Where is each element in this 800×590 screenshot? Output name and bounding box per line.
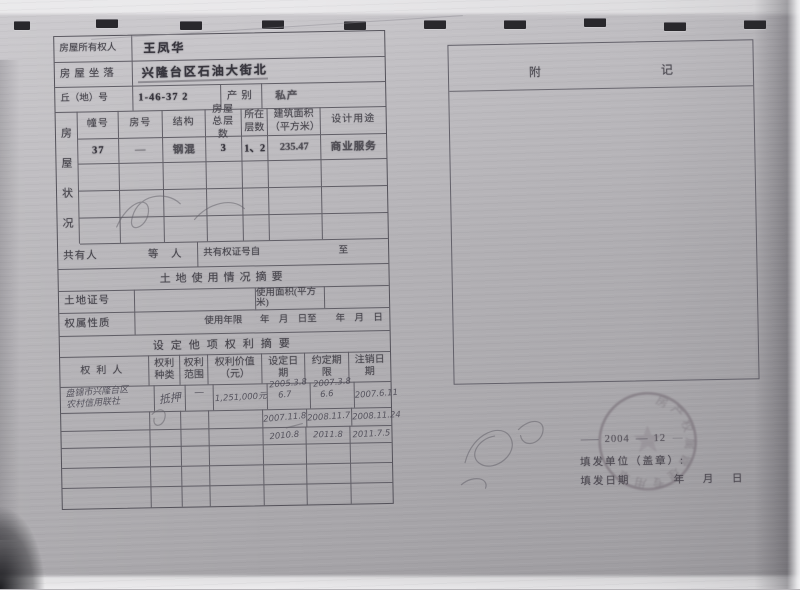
floor-value: 1、2 [244,140,265,155]
notes-panel: 附 记 [447,39,759,385]
notes-title-char: 附 [529,63,541,80]
dash-mark [672,437,682,439]
building-no-value: 37 [92,145,105,156]
coowner-label: 共有人 [63,250,98,262]
rights-section-title: 设定他项权利摘要 [153,334,297,353]
issuer-line: 填发单位（盖章）: [580,453,685,470]
scanned-document: 房屋所有权人 王凤华 房屋坐落 兴隆台区石油大街北 丘（地）号 [0,0,800,589]
side-char: 况 [62,215,73,231]
issue-date-line: 填发日期 年 月 日 [580,470,744,488]
use-years-label: 使用年限 [204,316,242,327]
plot-label: 丘（地）号 [60,93,108,104]
col-right-scope: 权利范围 [180,357,207,382]
right-scope-value: — [194,387,204,398]
side-char: 屋 [61,155,72,171]
issuer-label: 填发单位（盖章）: [580,456,685,469]
condition-side-label: 房 屋 状 况 [56,112,80,244]
location-label-cell: 房屋坐落 [55,61,133,87]
owner-label: 房屋所有权人 [59,43,116,54]
coowner-cert-label: 共有权证号自 [203,248,260,259]
class-value: 私产 [267,88,298,104]
col-room-no: 房号 [127,118,153,131]
cancel-date-value: 2007.6.11 [354,388,398,401]
col-floor: 所在层数 [242,109,267,134]
room-no-value: — [135,144,147,155]
col-cancel-date: 注销日期 [349,353,390,379]
term-value: 2008.11.7 [307,411,351,424]
issue-date-label: 填发日期 [580,476,630,488]
issue-date-blanks: 年 月 日 [674,473,745,485]
col-structure: 结构 [171,117,197,130]
coowner-count-suffix: 等 人 [148,248,183,260]
col-right-kind: 权利种类 [149,357,179,383]
col-area: 建筑面积（平方米） [268,108,320,134]
seal-month: 12 [654,433,667,444]
use-value: 商业服务 [331,138,377,154]
structure-value: 钢混 [173,141,196,156]
seal-date-line: 2004 12 [581,433,683,446]
location-value: 兴隆台区石油大街北 [138,60,268,83]
cancel-date-value: 2011.7.5 [352,428,390,440]
dash-mark [581,439,599,441]
owner-value-cell: 王凤华 [132,35,185,61]
col-right-value: 权利价值（元） [208,356,261,382]
land-cert-label: 土地证号 [64,295,110,307]
side-char: 房 [61,125,72,141]
location-value-cell: 兴隆台区石油大街北 [133,58,268,85]
side-char: 状 [62,185,73,201]
total-floors-value: 3 [221,143,227,154]
class-value-cell: 私产 [262,83,298,109]
set-date-value: 2007.11.8 [263,411,307,425]
land-section-title: 土地使用情况摘要 [159,268,287,286]
owner-value: 王凤华 [137,39,185,57]
col-right-holder: 权利人 [78,364,130,377]
owner-label-cell: 房屋所有权人 [54,36,132,62]
land-area-label: 使用面积(平方米) [256,287,324,309]
term-line2: 6.6 [313,387,352,401]
plot-label-cell: 丘（地）号 [55,86,133,112]
tenure-label: 权属性质 [64,318,110,330]
set-date-value: 2010.8 [269,429,300,442]
right-kind-value: 抵押 [158,389,182,408]
col-use: 设计用途 [329,113,377,126]
document-content: 房屋所有权人 王凤华 房屋坐落 兴隆台区石油大街北 丘（地）号 [0,0,800,590]
term-value: 2011.8 [313,429,343,440]
notes-header: 附 记 [448,40,753,92]
use-years-range: 年 月 日至 年 月 日 [260,313,383,326]
notes-title-char: 记 [661,61,673,78]
col-building-no: 幢号 [85,118,111,131]
coowner-to-label: 至 [339,246,349,257]
dash-mark [636,438,648,440]
plot-value: 1-46-37 2 [138,92,188,104]
right-value-value: 1,251,000元 [214,389,266,404]
class-label: 产别 [227,90,256,102]
cancel-date-value: 2008.11.24 [351,410,400,423]
seal-year: 2004 [605,434,630,445]
property-form-table: 房屋所有权人 王凤华 房屋坐落 兴隆台区石油大街北 丘（地）号 [53,30,394,510]
area-value: 235.47 [280,141,309,153]
location-label: 房屋坐落 [60,68,118,81]
